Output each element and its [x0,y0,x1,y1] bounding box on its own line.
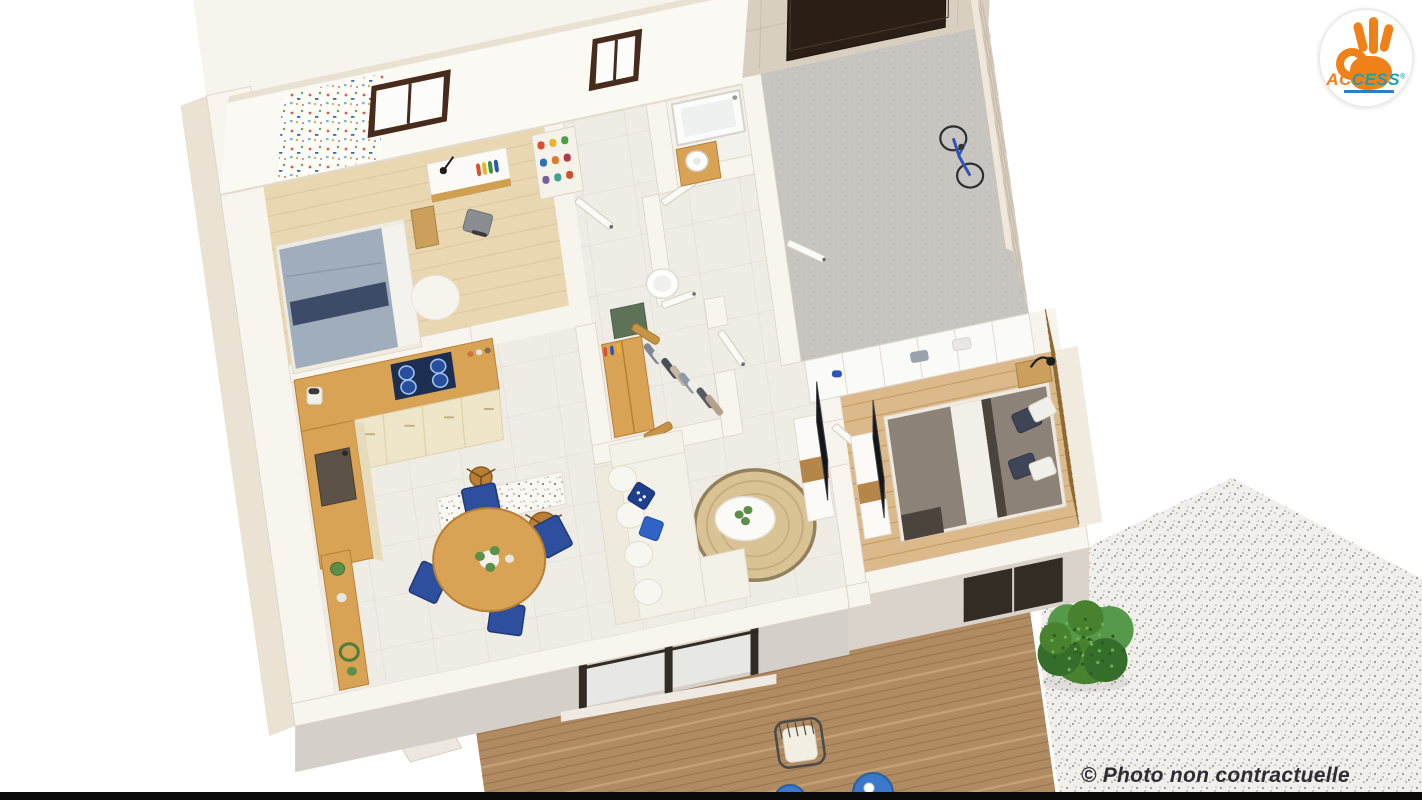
bush [1038,600,1134,692]
door-post [751,628,759,676]
desk-shelf [411,206,439,249]
folded-linen [832,370,842,377]
watermark-text: © Photo non contractuelle [1081,764,1350,788]
access-logo: ACCESS® [1318,8,1414,108]
wall [820,396,843,423]
plant [347,667,357,676]
fluffy-rug [411,276,459,320]
hob-ring [431,359,446,373]
cushion [625,541,653,567]
faucet [342,450,348,456]
bottom-letterbox-bar [0,792,1422,800]
render-stage: ACCESS® © Photo non contractuelle [0,0,1422,800]
door-post [579,664,587,712]
logo-wordmark: ACCESS® [1318,70,1414,90]
logo-text-secondary: CESS [1352,70,1400,89]
logo-underline [1344,90,1394,93]
tub-faucet [732,95,737,100]
hob-ring [399,366,414,380]
hob-ring [433,373,448,387]
logo-text-primary: AC [1326,70,1352,89]
registered-mark: ® [1400,73,1406,80]
vase [337,593,347,602]
wall [704,296,728,329]
cushion [634,579,662,605]
door-post [665,646,673,694]
sink [315,448,357,507]
plant [331,562,345,575]
cushion [609,466,637,492]
floorplan-scene [0,0,1422,800]
hob-ring [401,380,416,394]
sofa-chaise [700,549,751,606]
